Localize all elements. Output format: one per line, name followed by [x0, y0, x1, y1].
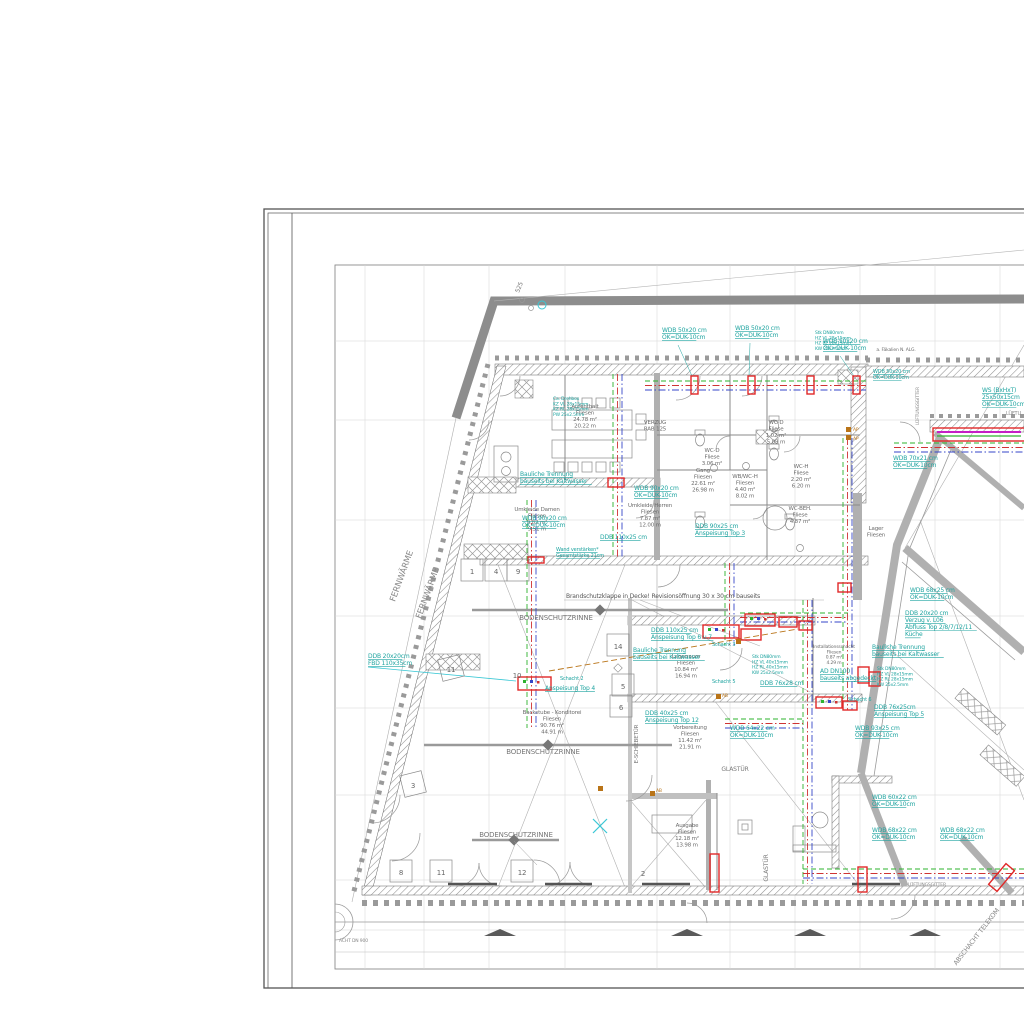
room-label: Umkleide HerrenFliesen7.87 m²12.00 m	[628, 503, 673, 528]
annotation-label: WDB 68x22 cmOK=DUK-10cm	[872, 827, 917, 841]
annotation-label: WDB 60x22 cmOK=DUK-10cm	[872, 794, 917, 808]
drawing-sheet: AufenthaltFliesen24.78 m²20.22 mWC-DFlie…	[0, 0, 1024, 1024]
annotation-label: WDB 93x25 cmOK=DUK-10cm	[855, 725, 900, 739]
annotation-label: Schacht 6	[848, 697, 871, 703]
position-number: 9	[516, 568, 520, 576]
position-number: 2	[641, 870, 645, 878]
annotation-label: WDB 90x20 cmOK=DUK-10cm	[522, 515, 567, 529]
drawing-text: Brandschutzklappe in Decke! Revisionsöff…	[566, 593, 760, 600]
room-label: WC-DFliese3.06 m²	[702, 448, 723, 467]
position-number: 1	[470, 568, 474, 576]
annotation-label: DDB 90x25 cmAnspeisung Top 3	[695, 523, 745, 537]
drawing-text: AP	[853, 436, 859, 442]
room-label: InstallationsschachtFliesen0.87 m²4.29 m	[813, 644, 855, 666]
annotation-label: WDB 90x20 cmOK=DUK-10cm	[634, 485, 679, 499]
position-number: 3	[411, 782, 415, 790]
annotation-label: Schacht 2	[560, 676, 583, 682]
position-number: 14	[614, 643, 623, 651]
room-label: VorbereitungFliesen11.42 m²21.91 m	[673, 725, 707, 750]
annotation-label: WDB 50x20 cmOK=DUK-10cm	[873, 369, 910, 381]
annotation-label: Wand verstärken*Gesamtstärke 21cm	[556, 547, 604, 559]
position-number: 8	[399, 869, 403, 877]
room-label: WC-HFliese2.20 m²6.20 m	[791, 464, 812, 489]
floor-plan-svg: AufenthaltFliesen24.78 m²20.22 mWC-DFlie…	[0, 0, 1024, 1024]
annotation-label: Bauliche Trennungbauseits bei Kaltwasser	[520, 471, 588, 485]
drawing-text: FERNWÄRME	[387, 549, 416, 603]
annotation-label: Anspeisung Top 4	[545, 685, 595, 692]
position-number: 4	[494, 568, 499, 576]
drawing-text: ABSCHACHT TELEKOM	[952, 907, 1001, 967]
drawing-text: LÜFTU	[1006, 410, 1021, 417]
room-label: WC-BEH.Fliese4.87 m²	[788, 506, 811, 525]
annotation-label: WDB 70x21 cmOK=DUK-10cm	[893, 455, 938, 469]
drawing-text: LÜFTUNGSGITTER	[914, 387, 921, 425]
room-label: a. Fäkalien N. ALG.	[876, 347, 915, 353]
annotation-label: WDB 64x22 cmOK=DUK-10cm	[730, 725, 775, 739]
drawing-text: GLASTÜR	[721, 766, 748, 773]
position-number: 6	[619, 704, 624, 712]
annotation-label: Bauliche Trennungbauseits bei Kaltwasser	[872, 644, 940, 658]
drawing-text: AB	[656, 788, 662, 794]
drawing-text: BODENSCHUTZRINNE	[479, 831, 552, 839]
position-number: 5	[621, 683, 625, 691]
room-label: LagerFliesen	[867, 526, 886, 538]
annotation-label: WDB 50x20 cmOK=DUK-10cm	[735, 325, 780, 339]
annotation-label: DDB 76x25cmAnspeisung Top 5	[874, 704, 924, 718]
annotation-label: WDB 68x22 cmOK=DUK-10cm	[940, 827, 985, 841]
annotation-label: Stk DN80mmHZ VL 28x15mmHZ RL 28x15mmKW 2…	[877, 666, 913, 688]
drawing-text: E-SCHIEBETÜR	[633, 724, 640, 763]
room-label: WB/WC-HFliesen4.40 m²8.02 m	[732, 474, 757, 499]
annotation-label: WDB 68x25 cmOK=DUK-10cm	[910, 587, 955, 601]
position-number: 11	[437, 869, 446, 877]
room-label: GangFliesen22.61 m²26.98 m	[691, 468, 715, 493]
annotations-layer: WDB 50x20 cmOK=DUK-10cmWDB 50x20 cmOK=DU…	[368, 325, 1024, 841]
room-label: WC-DFliese1.02 m²5.09 m	[766, 420, 787, 445]
annotation-label: WDB 50x20 cmOK=DUK-10cm	[662, 327, 707, 341]
drawing-text: 525	[514, 281, 525, 294]
drawing-text: ACHT DN 900	[339, 938, 368, 944]
drawing-text: BODENSCHUTZRINNE	[506, 748, 579, 756]
annotation-label: DDB 76x28 cm	[760, 680, 804, 687]
annotation-label: Stk DN80mmHZ VL 28x15mmHZ RL 28x15mmKW 2…	[815, 330, 851, 352]
room-label: VERZUGRAB 125	[644, 420, 667, 432]
annotation-label: DDB 20x20cmFBD 110x35cm	[368, 653, 412, 667]
room-label: AusgabeFliesen12.18 m²13.98 m	[675, 823, 699, 848]
position-number: 12	[518, 869, 527, 877]
drawing-text: GLASTÜR	[763, 854, 770, 881]
annotation-label: Stk DN80mmHZ VL 40x15mmHZ RL 40x15mmKW 2…	[752, 654, 788, 676]
annotation-label: Schacht 5	[712, 679, 735, 685]
drawing-text: AP	[853, 427, 859, 433]
annotation-label: DDB 110x25 cm	[600, 534, 647, 541]
position-number: 11	[447, 666, 456, 674]
drawing-text: LÜFTUNGSGITTER	[908, 881, 946, 888]
annotation-label: Bauliche Trennungbauseits bei Kaltwasser	[633, 647, 701, 661]
drawing-text: BODENSCHUTZRINNE	[519, 614, 592, 622]
annotation-label: Ca. DrehboxKZ VL 28x15mmKZ RL 28x15mmPW …	[553, 396, 588, 418]
annotation-label: Schacht 3	[712, 642, 735, 648]
annotation-label: DDB 40x25 cmAnspeisung Top 12	[645, 710, 699, 724]
drawing-text: AB	[722, 693, 728, 699]
annotation-label: WS (BxHxT)25x50x15cmOK=DUK-10cm	[982, 387, 1024, 408]
position-number: 10	[513, 672, 522, 680]
